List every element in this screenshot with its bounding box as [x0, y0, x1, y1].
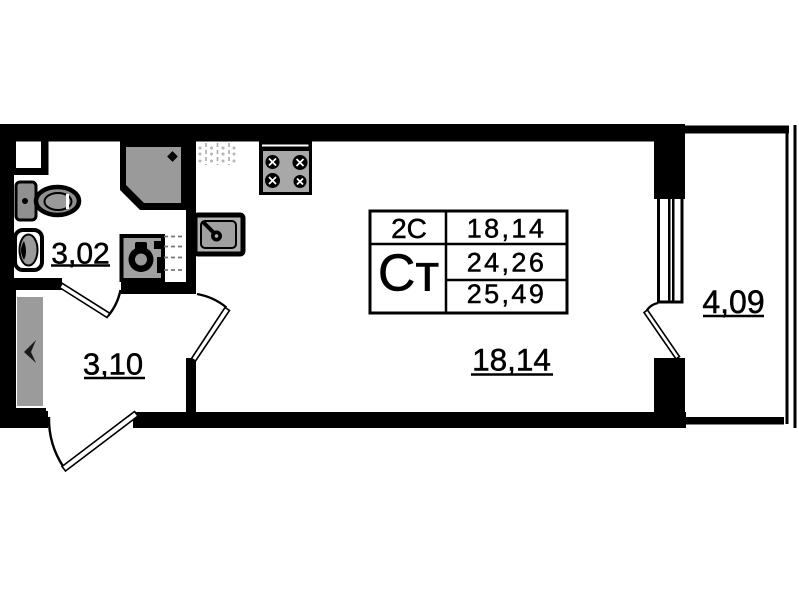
svg-text:3,10: 3,10	[83, 347, 143, 382]
svg-text:4,09: 4,09	[702, 284, 764, 320]
svg-text:24,26: 24,26	[467, 248, 547, 278]
svg-text:2С: 2С	[391, 213, 427, 244]
svg-text:18,14: 18,14	[472, 342, 551, 378]
svg-text:18,14: 18,14	[467, 214, 547, 244]
svg-text:Ст: Ст	[378, 245, 439, 303]
svg-text:25,49: 25,49	[467, 279, 547, 309]
